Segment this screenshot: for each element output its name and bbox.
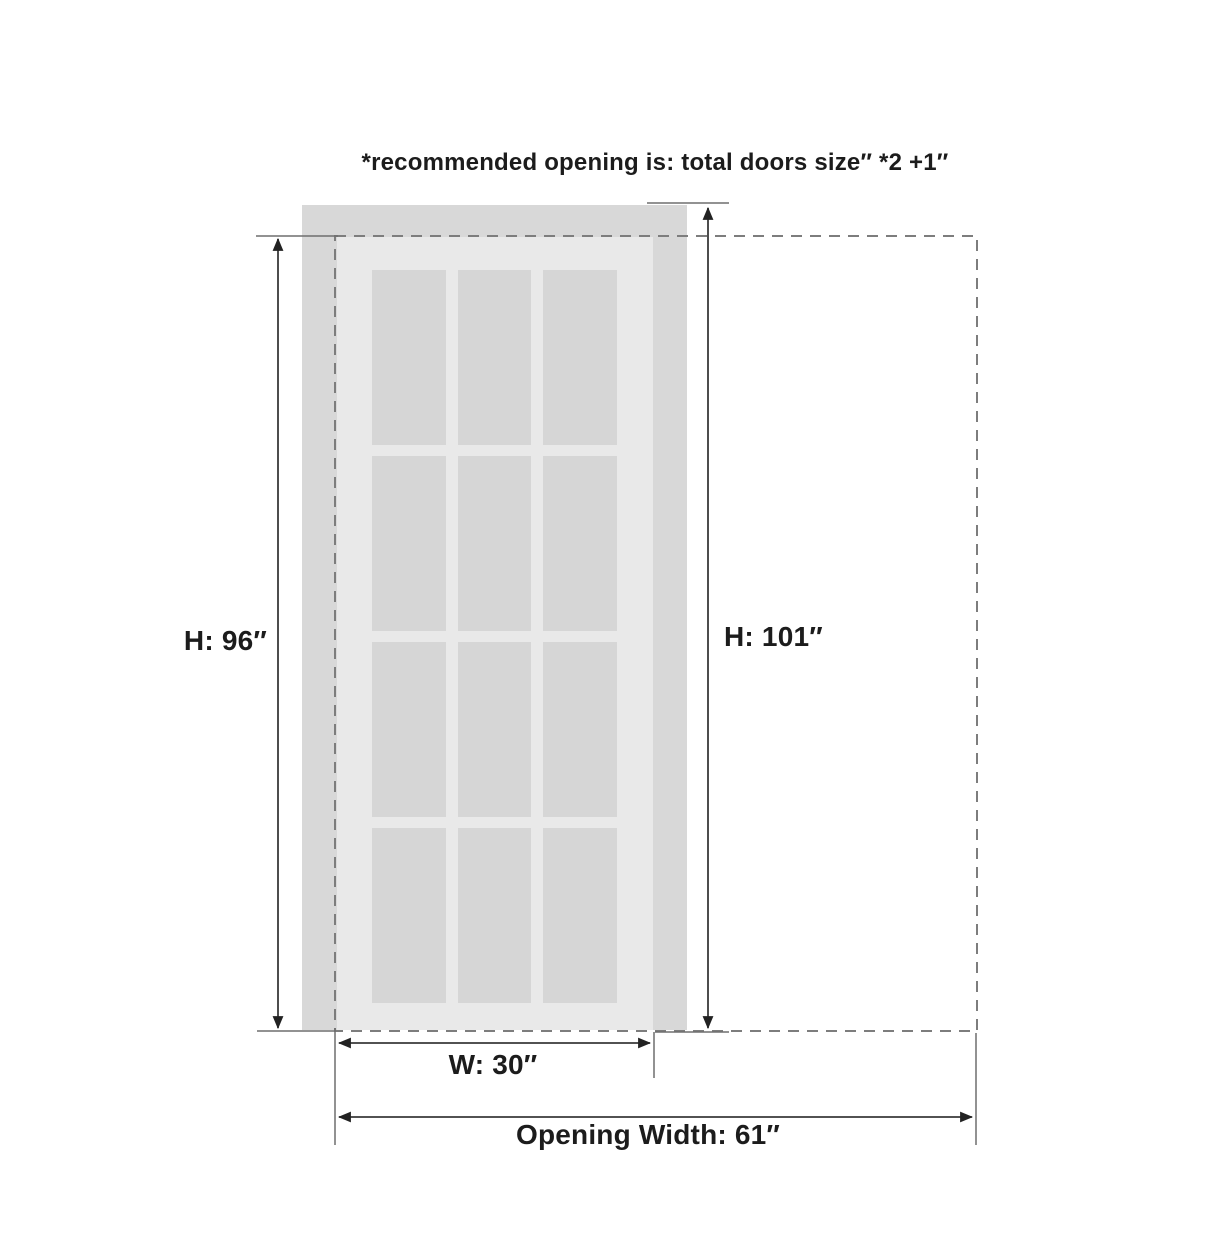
door-opening-diagram: *recommended opening is: total doors siz… [0,0,1214,1250]
glass-pane [458,828,532,1003]
glass-pane [458,642,532,817]
glass-pane [458,456,532,631]
glass-pane [372,642,446,817]
opening-width-label: Opening Width: 61″ [516,1119,780,1151]
glass-pane [458,270,532,445]
door-height-label: H: 96″ [87,625,267,657]
glass-pane [372,456,446,631]
opening-height-label: H: 101″ [724,621,823,653]
glass-pane [543,642,617,817]
recommended-opening-note: *recommended opening is: total doors siz… [362,149,949,177]
glass-pane [543,270,617,445]
door-slab [337,237,653,1030]
door-width-label: W: 30″ [449,1049,538,1081]
glass-pane [372,270,446,445]
glass-pane [372,828,446,1003]
glass-pane [543,828,617,1003]
glass-pane [543,456,617,631]
